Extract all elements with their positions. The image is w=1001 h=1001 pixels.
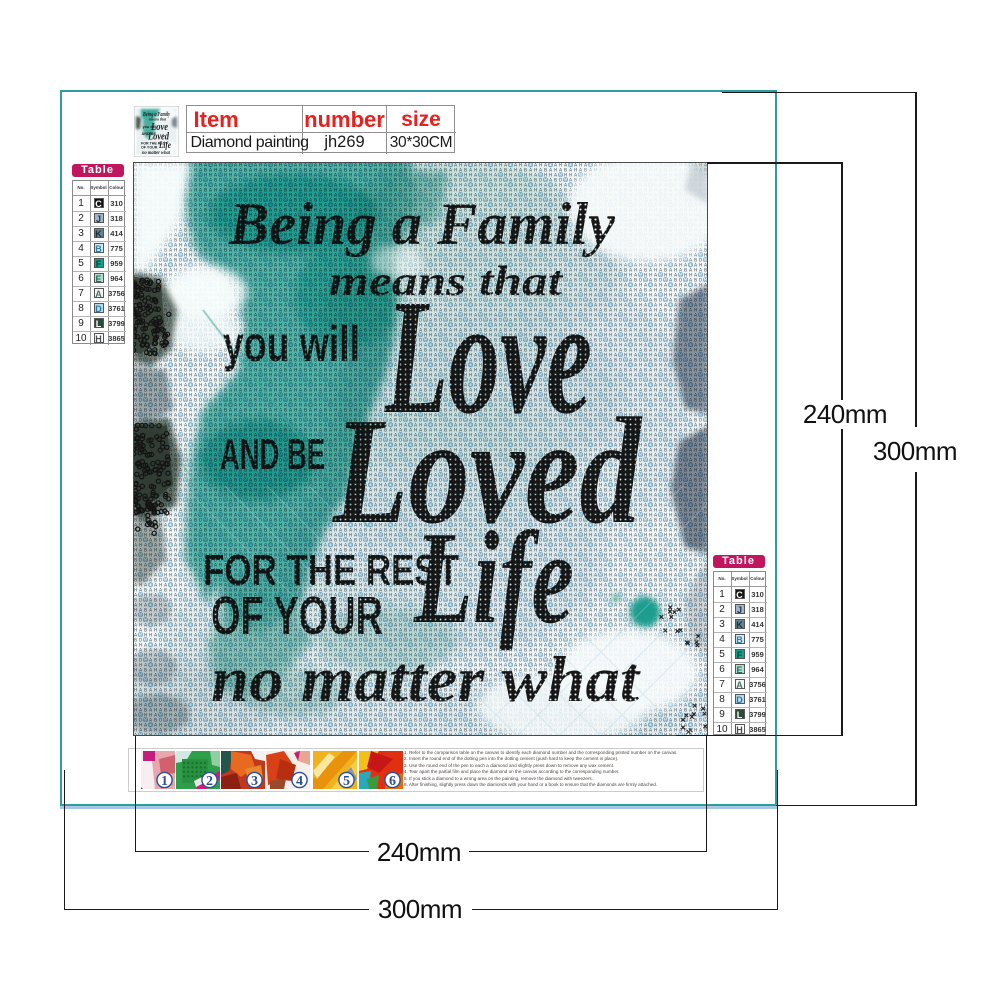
svg-text:OF YOUR: OF YOUR [211, 586, 383, 646]
svg-text:no matter what: no matter what [211, 644, 641, 716]
svg-text:AND BE: AND BE [220, 430, 325, 479]
svg-text:means that: means that [149, 117, 167, 122]
svg-text:OF YOUR: OF YOUR [141, 146, 158, 150]
svg-text:5: 5 [343, 774, 350, 789]
svg-text:no matter what: no matter what [142, 150, 170, 156]
svg-text:Life: Life [158, 140, 171, 150]
svg-text:3: 3 [251, 774, 258, 789]
svg-text:Being a Family: Being a Family [228, 191, 615, 257]
svg-text:6: 6 [389, 774, 396, 789]
svg-text:Life: Life [413, 504, 574, 651]
svg-text:2: 2 [206, 774, 213, 789]
svg-text:you will: you will [223, 316, 360, 372]
svg-text:4: 4 [296, 774, 303, 789]
svg-text:1: 1 [161, 774, 168, 789]
